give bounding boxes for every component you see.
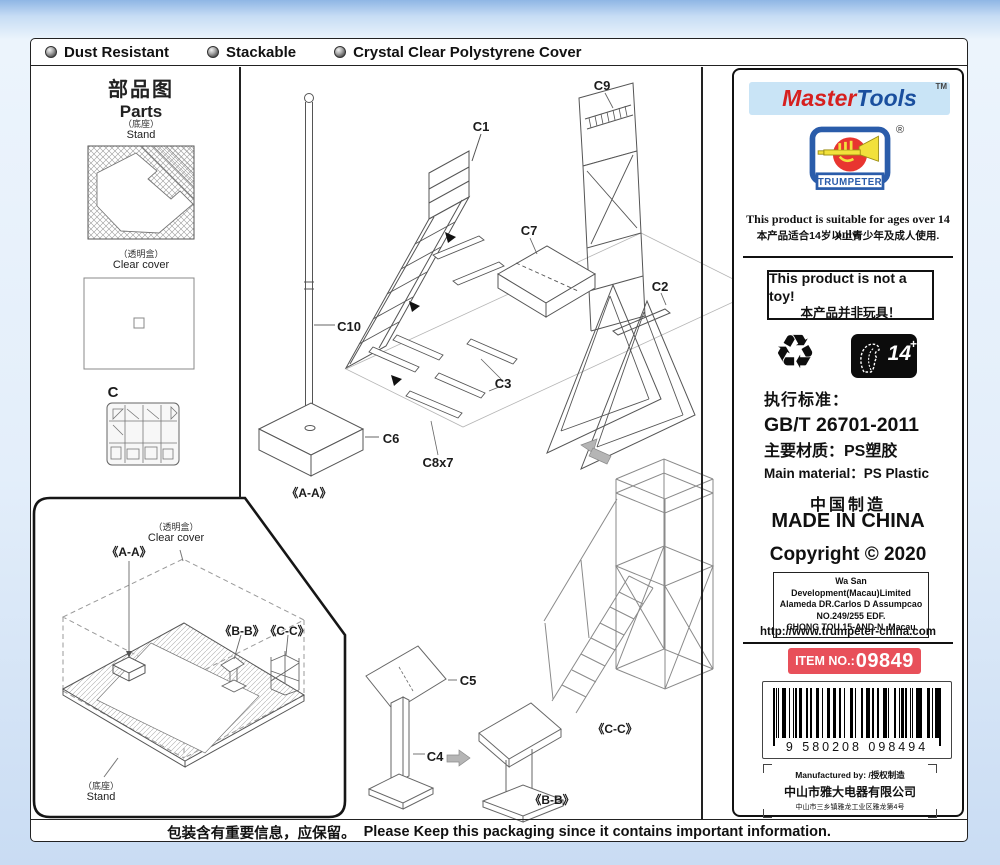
part-label-c7: C7 xyxy=(521,223,538,238)
assembled-cover-zh: （透明盒） xyxy=(121,522,231,532)
registered-symbol: ® xyxy=(896,124,904,136)
item-no-label: ITEM NO.: xyxy=(795,654,855,668)
brand-master: Master xyxy=(782,85,856,112)
not-a-toy-box: This product is not a toy! 本产品并非玩具！ xyxy=(767,270,934,320)
cover-caption: （透明盒） Clear cover xyxy=(61,249,221,272)
direction-arrows xyxy=(447,439,611,766)
standard-value: GB/T 26701-2011 xyxy=(764,416,929,436)
assembled-stand-en: Stand xyxy=(61,791,141,804)
assembled-label-bb: 《B-B》 xyxy=(219,622,264,639)
divider xyxy=(743,642,953,644)
feature-strip: Dust Resistant Stackable Crystal Clear P… xyxy=(31,39,967,66)
item-number-badge: ITEM NO.: 09849 xyxy=(788,648,921,674)
barcode-bars xyxy=(773,688,941,738)
sprue-label: C xyxy=(108,384,119,401)
section-label-aa: 《A-A》 xyxy=(286,484,331,501)
copyright-line: Copyright © 2020 xyxy=(734,544,962,566)
manufacturer-block: Manufactured by: /授权制造 中山市雅大电器有限公司 中山市三乡… xyxy=(763,764,937,818)
part-label-c2: C2 xyxy=(652,279,669,294)
divider-right-panel xyxy=(701,67,703,819)
assembled-label-cc: 《C-C》 xyxy=(264,622,309,639)
part-label-c10: C10 xyxy=(337,319,361,334)
assembled-label-aa: 《A-A》 xyxy=(106,543,151,560)
recycle-icon: ♻ xyxy=(774,328,816,376)
not-toy-zh: 本产品并非玩具！ xyxy=(800,305,900,321)
brand-tools: Tools xyxy=(856,85,916,112)
bottom-notice-zh: 包装含有重要信息，应保留。 xyxy=(167,822,356,843)
material-en: Main material：PS Plastic xyxy=(764,467,929,481)
bracket-corner xyxy=(763,764,772,773)
standards-block: 执行标准： GB/T 26701-2011 主要材质：PS塑胶 Main mat… xyxy=(764,393,929,480)
trumpeter-logo: TRUMPETER xyxy=(808,126,892,192)
made-in-china-en: MADE IN CHINA xyxy=(734,510,962,533)
mfg-line2: 中山市雅大电器有限公司 xyxy=(763,783,937,800)
face-profiles-icon xyxy=(854,336,888,376)
packaging-back-panel: Dust Resistant Stackable Crystal Clear P… xyxy=(30,38,968,842)
material-zh: 主要材质：PS塑胶 xyxy=(764,444,929,460)
address-line: Alameda DR.Carlos D Assumpcao xyxy=(780,599,922,609)
address-line: Wa San Development(Macau)Limited xyxy=(791,576,911,598)
cover-caption-zh: （透明盒） xyxy=(61,249,221,259)
bracket-corner xyxy=(928,764,937,773)
part-label-c1: C1 xyxy=(473,119,490,134)
feature-dust: Dust Resistant xyxy=(45,44,169,61)
stand-caption: （底座） Stand xyxy=(61,119,221,142)
parts-panel-art xyxy=(84,146,194,465)
parts-panel-title: 部品图 Parts xyxy=(61,79,221,122)
exploded-diagram-art xyxy=(259,83,757,476)
assembled-panel-art xyxy=(34,498,345,817)
barcode-guard-right xyxy=(939,688,941,746)
age-badge-number: 14 xyxy=(888,342,911,366)
divider xyxy=(743,256,953,258)
standard-label: 执行标准： xyxy=(764,393,929,409)
item-no-value: 09849 xyxy=(856,650,914,673)
trademark-symbol: TM xyxy=(935,82,947,91)
assembled-stand-caption: （底座） Stand xyxy=(61,781,141,804)
barcode-guard-left xyxy=(773,688,775,746)
master-tools-logo: MasterTools TM xyxy=(749,82,950,115)
mfg-line1: Manufactured by: /授权制造 xyxy=(763,769,937,781)
age-notice-zh: 本产品适合14岁以上青少年及成人使用. xyxy=(734,228,962,243)
bullet-icon xyxy=(45,46,57,58)
divider-left-panel xyxy=(239,67,241,498)
assembled-stand-zh: （底座） xyxy=(61,781,141,791)
info-column: MasterTools TM TRUMPETER ® This product … xyxy=(732,68,964,817)
mfg-line3: 中山市三乡镇雅龙工业区雅龙第4号 xyxy=(763,802,937,812)
stand-caption-zh: （底座） xyxy=(61,119,221,129)
bullet-icon xyxy=(207,46,219,58)
bottom-notice-en: Please Keep this packaging since it cont… xyxy=(364,824,831,840)
part-label-c8x7: C8x7 xyxy=(422,455,453,470)
assembled-cover-caption: （透明盒） Clear cover xyxy=(121,522,231,545)
age-14plus-icon: 14 + xyxy=(851,334,917,378)
feature-stackable: Stackable xyxy=(207,44,296,61)
feature-label: Stackable xyxy=(226,44,296,61)
feature-label: Crystal Clear Polystyrene Cover xyxy=(353,44,581,61)
feature-label: Dust Resistant xyxy=(64,44,169,61)
part-label-c6: C6 xyxy=(383,431,400,446)
trumpeter-wordmark: TRUMPETER xyxy=(818,177,882,188)
bullet-icon xyxy=(334,46,346,58)
cover-caption-en: Clear cover xyxy=(61,259,221,272)
part-label-c4: C4 xyxy=(427,749,444,764)
section-label-bb: 《B-B》 xyxy=(529,791,574,808)
barcode: 9 580208 098494 xyxy=(762,681,952,759)
address-line: NO.249/255 EDF. xyxy=(817,611,886,621)
feature-cover: Crystal Clear Polystyrene Cover xyxy=(334,44,581,61)
bracket-corner xyxy=(763,809,772,818)
parts-title-zh: 部品图 xyxy=(61,79,221,102)
bottom-notice-strip: 包装含有重要信息，应保留。 Please Keep this packaging… xyxy=(31,819,967,844)
part-label-c5: C5 xyxy=(460,673,477,688)
age-badge-plus: + xyxy=(910,337,917,351)
not-toy-en: This product is not a toy! xyxy=(769,269,932,305)
bracket-corner xyxy=(928,809,937,818)
stand-caption-en: Stand xyxy=(61,129,221,142)
barcode-digits: 9 580208 098494 xyxy=(763,740,951,754)
part-label-c3: C3 xyxy=(495,376,512,391)
cc-tower-art xyxy=(544,459,713,713)
part-label-c9: C9 xyxy=(594,78,611,93)
section-label-cc: 《C-C》 xyxy=(592,720,637,737)
website-url: http://www.trumpeter-china.com xyxy=(734,626,962,638)
